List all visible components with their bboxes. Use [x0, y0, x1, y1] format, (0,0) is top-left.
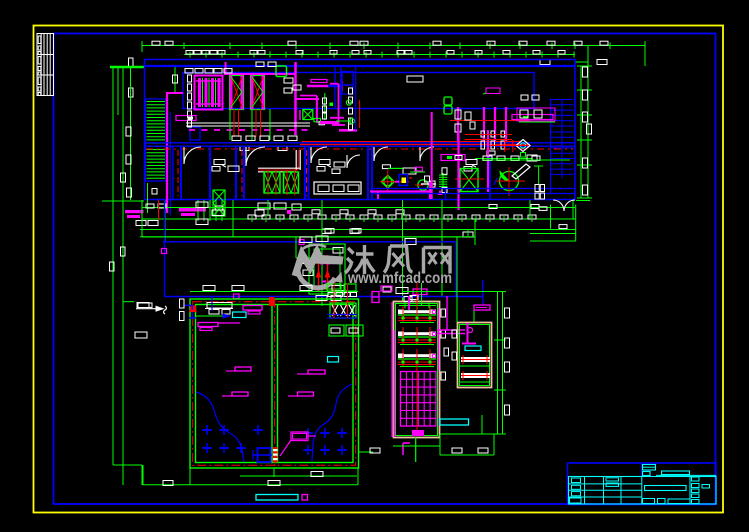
svg-text:www.mfcad.com: www.mfcad.com	[347, 270, 452, 287]
